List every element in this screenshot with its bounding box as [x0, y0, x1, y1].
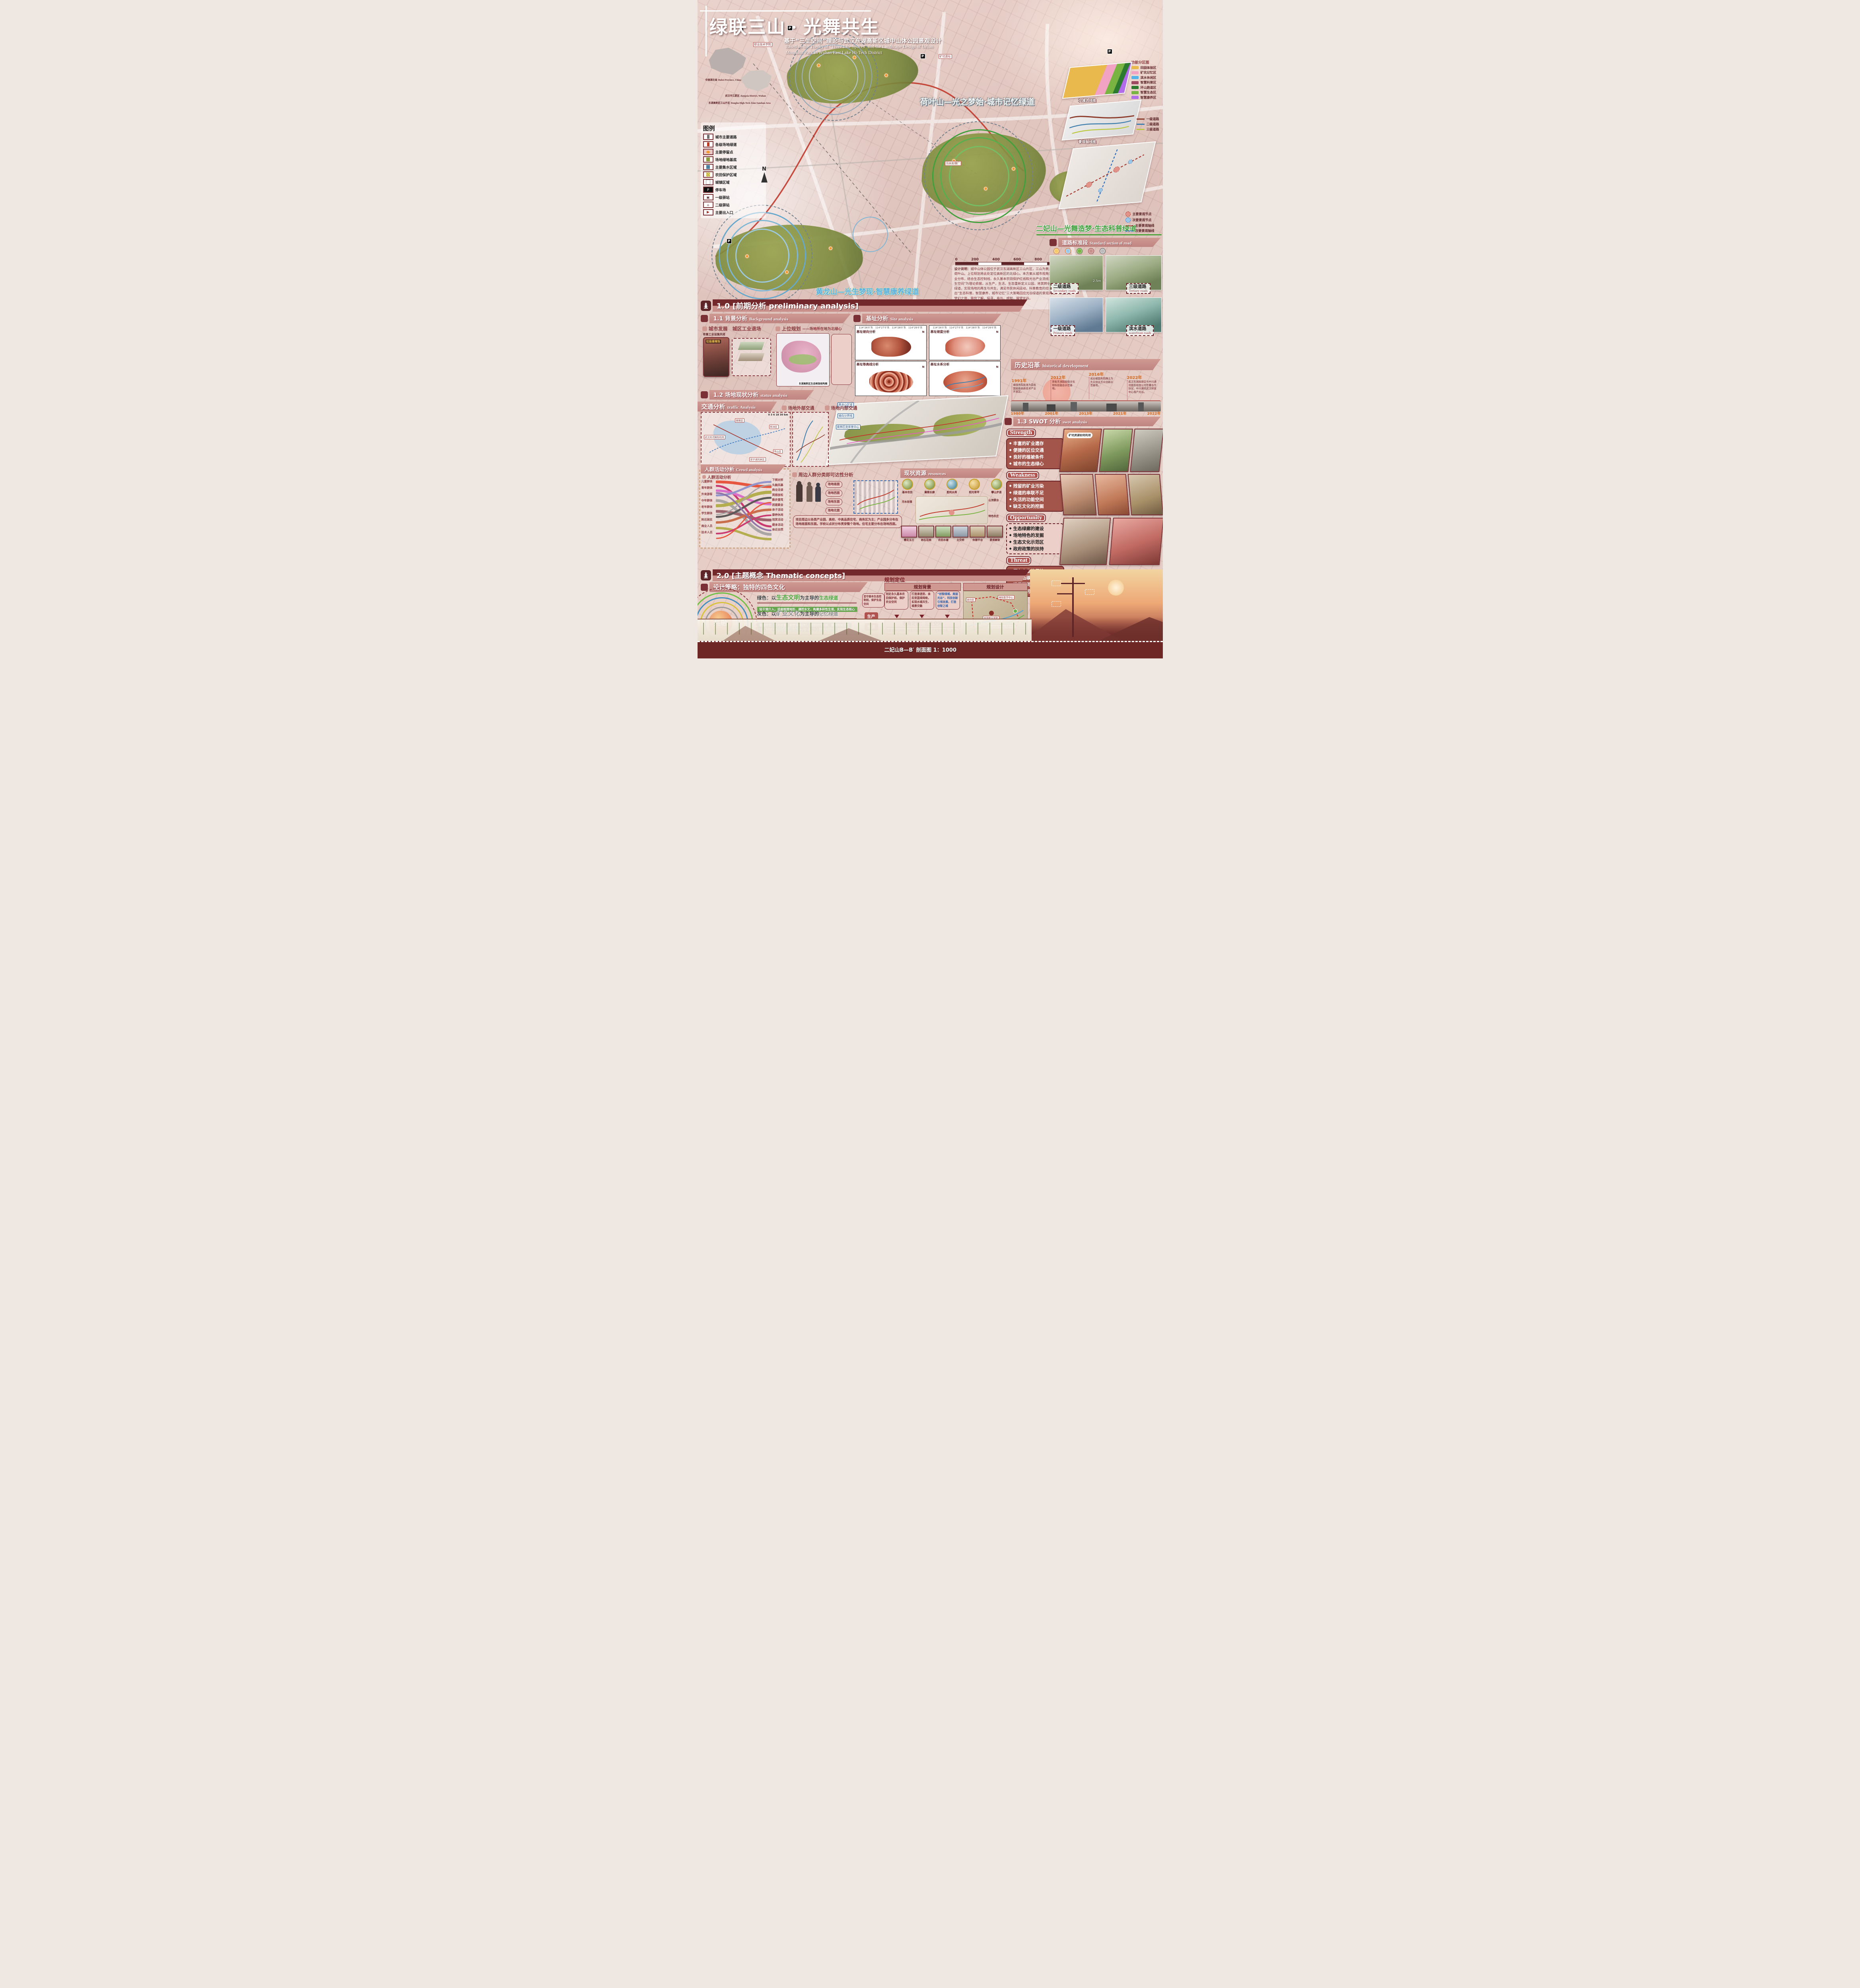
swot-photo-roads: [1130, 429, 1163, 472]
station2-icon: ⌂: [703, 202, 713, 208]
road-line-swatch: [1137, 124, 1145, 125]
weakness-title: Weakness: [1006, 471, 1039, 480]
water-swatch: [703, 164, 713, 170]
section-1-2: 1.2 场地现状分析 status analysis: [701, 390, 814, 400]
zone-swatch: [1131, 81, 1139, 84]
legend-item: 场地绿地基底: [703, 156, 764, 163]
parking-icon: P: [727, 239, 732, 244]
plan-map-label: 国际医学中心: [998, 595, 1015, 600]
subtitle-en-1: Based on the Theory of "Three Life Space…: [786, 45, 934, 49]
periphery-directions: 场地南面 场地西面 场地东面 场地北面: [826, 481, 842, 514]
station1-icon: ▣: [703, 194, 713, 200]
ext-scalebar: 0 3 6 18 30 km: [768, 414, 788, 416]
strength-box: ◆丰富的矿业遗存 ◆便捷的区位交通 ◆良好的植被条件 ◆城市的生态绿心: [1006, 438, 1064, 469]
ext-label: 新洲区: [769, 425, 779, 429]
space-icon: ◆: [1009, 497, 1012, 502]
swot-icon: [1005, 418, 1012, 425]
ext-label: 黄陂区: [735, 418, 744, 423]
threat-title: Threat: [1006, 556, 1032, 565]
swot-photo-visitors: [1059, 518, 1110, 565]
landfill-caption: 垃圾填埋场: [706, 340, 721, 344]
legend-item: 次要景观轴线: [1125, 229, 1154, 233]
smart-lamppost-diagram: [1049, 577, 1097, 637]
road-line-swatch: [1137, 118, 1145, 120]
ext-label: 梁子湖风景区: [749, 457, 766, 462]
legend-item: 主要景观节点: [1125, 212, 1154, 217]
erfeishan-rings: [924, 121, 1032, 229]
bus-icon: ◆: [1009, 448, 1012, 452]
huanglongshan-rings: [711, 205, 811, 304]
subtitle-en-2: Mountain Park in Wuhan East Lake Hi-Tech…: [786, 50, 882, 55]
resource-node-label: 特色农庄: [989, 514, 999, 518]
greenway-swatch: [703, 141, 713, 148]
legend-item: 一级道路: [1137, 117, 1159, 121]
mine-icon: ◆: [1009, 441, 1012, 446]
design-note-label: 设计说明：: [954, 267, 971, 271]
stop-point: [884, 74, 888, 77]
strength-title: Strength: [1006, 429, 1036, 437]
traffic-map-card: [1061, 99, 1141, 140]
weakness-box: ◆残留的矿业污染 ◆绿道的串联不足 ◆失活的功能空间 ◆缺乏文化的挖掘: [1006, 481, 1064, 512]
traffic-map-legend: 一级道路 二级道路 三级道路: [1137, 116, 1159, 132]
legend-item: 城市主要道路: [703, 134, 764, 140]
zone-swatch: [1131, 86, 1139, 89]
opportunity-title: Opportunity: [1006, 514, 1046, 522]
legend-item: 智慧科普区: [1131, 80, 1156, 85]
eco-note: 坚守基本生态控制线，保护生态空间: [862, 593, 884, 608]
planning-design-head: 规划设计: [963, 583, 1028, 591]
legend-item: 主要景观轴线: [1125, 223, 1154, 228]
swot-photo-pit: 矿坑资源如何利用: [1059, 429, 1102, 472]
legend-item: 滨水休闲区: [1131, 76, 1156, 80]
ext-label: 铁山区: [773, 449, 783, 454]
section-1-1-icon: [701, 315, 708, 322]
history-timeline: 1991年被国务院批准为首批国家级高新技术产业开发区。 2012年获批东湖国家级…: [1011, 371, 1161, 415]
zone-swatch: [1131, 96, 1139, 99]
crowd-activities: 下棋对弈头脑风暴商业洽谈冥想放松散步遛弯团建聚会亲子活动康养休闲观赏活动健身活动…: [772, 479, 783, 531]
road-section-header: 道路标准段 Standard section of road: [1050, 238, 1161, 247]
external-traffic-map: 武汉天河国际机场 黄陂区 新洲区 梁子湖风景区 铁山区 0 3 6 18 30 …: [701, 412, 791, 467]
swot-photo-aerial: [1127, 474, 1163, 515]
history-collage: [1011, 400, 1161, 412]
swot-photo-pavilion: [1094, 474, 1129, 515]
resources-header: 现状资源 resources: [900, 468, 1003, 478]
legend-item: ▶主要出入口: [703, 209, 764, 215]
section-drawing-band: [698, 619, 1032, 642]
town-swatch: [703, 179, 713, 185]
upper-plan-map: 东湖高新区生态框架结构图: [776, 333, 830, 386]
landfill-photo: 垃圾填埋场: [703, 337, 729, 377]
crowd-header: 人群活动分析 Crowd analysis: [701, 464, 786, 474]
traffic-analysis-header: 交通分析 traffic Analysis: [698, 402, 777, 412]
heyeshan-banner: 荷叶山—光之梦始·城市记忆绿道: [920, 95, 1035, 107]
history-header: 历史沿革 historical development: [1011, 359, 1161, 370]
legend-item: 智慧康养区: [1131, 95, 1156, 100]
swot-photo-flowerfield: [1109, 518, 1162, 565]
periphery-people: [795, 481, 822, 505]
minor-ring: [853, 217, 888, 252]
road-label-secondary: 二级道路Secondary roads: [1051, 283, 1079, 294]
site-analysis-header: 基址分析 Site analysis: [853, 314, 1001, 323]
road-label-tertiary: 三级道路Tertiary roads: [1126, 283, 1151, 294]
section-1-0-label: 1.0 [前期分析 preliminary analysis]: [713, 299, 1028, 312]
parking-legend-icon: P: [703, 186, 713, 193]
legend-item: ▣一级驿站: [703, 194, 764, 200]
resource-node-label: 污水处理: [902, 499, 912, 503]
crowd-sankey: [716, 479, 772, 542]
swot-photo-person: [1059, 474, 1096, 515]
resource-photo: [918, 526, 934, 538]
planning-arrows: [884, 615, 960, 618]
page-title: 绿联三山 · 光舞共生: [709, 13, 980, 39]
axis-line-swatch: [1125, 231, 1133, 231]
section-2-0: 2.0 [主题概念 Thematic concepts]: [701, 569, 1030, 581]
eco-icon: ◆: [1009, 540, 1012, 544]
sunset-photo: [1030, 569, 1163, 645]
pagoda-icon: [701, 570, 711, 580]
title-rule-h: [700, 10, 871, 12]
axon-label: 奥林匹克体育中心: [836, 425, 861, 429]
culture-icon: ◆: [1009, 504, 1012, 509]
stop-point: [1012, 167, 1015, 171]
legend-item: 田园体验区: [1131, 66, 1156, 70]
planning-left-head: 规划定位: [884, 576, 905, 583]
hubei-map-shape: [739, 69, 774, 92]
zone-swatch: [1131, 76, 1139, 79]
upper-plan-head: 上位规划——场地所在地为北绿心: [775, 325, 842, 332]
city-dev-note: 有害工业设施关闭: [703, 332, 725, 336]
plan-map-label: 居住区: [966, 598, 976, 602]
resources-photo-strip: 樱花玉兰 岩石花园 农田水塘 立交桥 休憩平台 景观廊架: [901, 526, 1003, 542]
title-block: 绿联三山 · 光舞共生: [709, 13, 980, 39]
legend-item: 主要停留点: [703, 149, 764, 155]
parking-icon: P: [1107, 49, 1112, 54]
functional-map-legend: 田园体验区 矿坑记忆区 滨水休闲区 智慧科普区 环山跑道区 智慧生态区 智慧康养…: [1131, 65, 1156, 100]
internal-traffic-head: 场地内部交通: [825, 405, 857, 411]
site-panel-contour: 基址等高线分析 N: [855, 361, 927, 396]
north-arrow: N: [761, 166, 768, 182]
road-label-waterfront: 滨水道路waterfront roads: [1126, 325, 1154, 336]
swot-header: 1.3 SWOT 分析 swot analysis: [1005, 417, 1161, 426]
section-1-1: 1.1 背景分析 Background analysis: [701, 314, 851, 323]
section-1-0: 1.0 [前期分析 preliminary analysis]: [701, 299, 1028, 312]
upper-plan-note-box: [831, 334, 852, 385]
periphery-header: 周边人群分类即可达性分析: [792, 472, 853, 478]
farmland-swatch: [703, 171, 713, 178]
road-section-icon: [1050, 239, 1057, 246]
legend-item: 二级道路: [1137, 122, 1159, 126]
road-line-swatch: [1137, 129, 1145, 130]
planning-boxes: 划定永久基本农田保护线，保护农业空间 打造渗透型、亲民型蓝绿网络，实现水城共生、…: [884, 591, 960, 610]
bottom-band: 二妃山B—B′ 剖面图 1：1000: [698, 641, 1163, 658]
section-2-0-label: 2.0 [主题概念 Thematic concepts]: [713, 569, 1030, 581]
axis-map-title: 景观轴线图: [1079, 139, 1096, 144]
section-1-2-icon: [701, 391, 708, 398]
zone-swatch: [1131, 91, 1139, 94]
parking-icon: P: [920, 54, 925, 59]
swot-photo-lake: [1099, 429, 1133, 472]
zone-swatch: [1131, 71, 1139, 74]
node-swatch: [1125, 217, 1131, 223]
map-label: 矿坑遗址: [939, 54, 952, 59]
feature-icon: ◆: [1009, 533, 1012, 538]
stop-point: [853, 56, 856, 59]
city-dev-head: 城市发展 城区工业退场: [702, 325, 761, 332]
bulb-icon: [1053, 248, 1059, 254]
opportunity-box: ◆生态绿廊的建设 ◆场地特色的发掘 ◆生态文化示范区 ◆政府政策的扶持: [1006, 523, 1064, 554]
history-entry: 2016年光谷被国务院确立为大众创业万众创新示范基地。: [1089, 371, 1114, 399]
resource-node-photo: [902, 479, 913, 490]
axis-map-card: [1058, 141, 1156, 209]
legend-item: 各级场地绿道: [703, 141, 764, 148]
resource-photo: [987, 526, 1003, 538]
legend-title: 图例: [703, 124, 764, 132]
upper-plan-caption: 东湖高新区生态框架结构图: [798, 382, 828, 385]
map-legend: 图例 城市主要道路 各级场地绿道 主要停留点 场地绿地基底 主要集水区域 农田保…: [701, 122, 766, 218]
resource-photo: [970, 526, 985, 538]
road-dim: 2.5m: [1093, 279, 1101, 283]
resource-photo: [952, 526, 968, 538]
location-caption-1: 中国湖北省 Hubei Province, China: [706, 78, 742, 82]
legend-item: 主要集水区域: [703, 164, 764, 170]
stop-point: [745, 254, 749, 258]
traffic-map-title: 交通流线图: [1079, 98, 1096, 103]
history-entry: 2012年获批东湖国家级文化和科技融合示范基地。: [1051, 374, 1075, 401]
external-traffic-head: 场地外部交通: [782, 405, 814, 411]
periphery-note: 项目周边以各类产业园、高校、中高品质住宅、商务区为主；产业园多分布在场地南面和东…: [793, 515, 902, 528]
lamp-icon: [1100, 248, 1106, 254]
internal-traffic-map: [792, 412, 829, 467]
resource-photo: [901, 526, 917, 538]
planning-bg-head: 规划背景: [884, 583, 961, 591]
huanglongshan-banner: 黄龙山—光生梦现·智慧康养绿道: [816, 286, 919, 297]
subtitle-zh: 基于“三生空间”理论与武汉东湖高新区城中山体公园景观设计: [784, 37, 942, 45]
resources-nodes-top: 基本农田 蒹葭长廊 胜利水库 阳光草坪 攀山步道: [902, 479, 1002, 494]
road-section-icons: [1053, 248, 1106, 254]
china-map-shape: [705, 46, 748, 77]
legend-item: 智慧生态区: [1131, 90, 1156, 95]
pagoda-icon: [701, 301, 711, 311]
history-bottom-years: 1980年 2001年 2013年 2021年 2022年: [1011, 411, 1161, 416]
axon-label: 坡向分界线: [838, 414, 854, 418]
periphery-map: [853, 480, 898, 514]
tree-icon: [1077, 248, 1083, 254]
resource-node-label: 山顶景台: [989, 498, 999, 502]
resource-photo: [935, 526, 951, 538]
competition-poster: P P P P P 职业技术学院 矿坑遗址 污水处理厂 绿联三山 · 光舞共生 …: [698, 0, 1163, 658]
resource-node-photo: [947, 479, 958, 490]
location-maps: 中国湖北省 Hubei Province, China 武汉市江夏区 Jiang…: [702, 38, 781, 118]
road-swatch: [703, 134, 713, 140]
site-panel-aspect: 114°26′0″东 114°27′0″东 114°28′0″东 114°29′…: [855, 325, 927, 360]
legend-item: 矿坑记忆区: [1131, 70, 1156, 75]
road-label-primary: 一级道路Primary roads: [1051, 325, 1075, 336]
stop-point: [817, 64, 820, 67]
node-swatch: [1125, 212, 1131, 217]
stop-point: [829, 247, 832, 250]
resource-node-photo: [924, 479, 935, 490]
policy-icon: ◆: [1009, 546, 1012, 551]
functional-map-card: [1062, 62, 1132, 99]
location-caption-2: 武汉市江夏区 Jiangxia District, Wuhan: [725, 94, 766, 97]
legend-item: 次要景观节点: [1125, 217, 1154, 223]
zone-swatch: [1131, 66, 1139, 69]
legend-item: P停车场: [703, 186, 764, 193]
speech-bubble: 矿坑资源如何利用: [1067, 433, 1092, 438]
axis-line-swatch: [1125, 225, 1133, 226]
history-entry: 2022年武汉东湖高新区与中兴通讯股份有限公司签署合作协议，中兴通讯武汉研发中心…: [1127, 374, 1157, 401]
section-view-label: 二妃山B—B′ 剖面图 1：1000: [884, 646, 957, 653]
pollution-icon: ◆: [1009, 483, 1012, 488]
legend-item: 三级道路: [1137, 127, 1159, 132]
site-analysis-icon: [853, 315, 861, 322]
green-base-swatch: [703, 156, 713, 163]
legend-item: 环山跑道区: [1131, 85, 1156, 90]
map-label: 污水处理厂: [945, 161, 961, 166]
resources-map: [915, 496, 988, 524]
legend-item: 城镇区域: [703, 179, 764, 185]
stop-point: [785, 270, 789, 274]
axis-map-legend: 主要景观节点 次要景观节点 主要景观轴线 次要景观轴线: [1125, 211, 1154, 234]
resource-node-photo: [969, 479, 980, 490]
industry-diagram: [732, 338, 771, 376]
location-caption-3: 东湖高新区三山片区 Donghu High-Tech Zone Sanshan …: [709, 101, 771, 105]
stop-point: [984, 187, 987, 190]
ext-label: 武汉天河国际机场: [704, 435, 725, 439]
forest-icon: ◆: [1009, 461, 1012, 466]
history-entry: 1991年被国务院批准为首批国家级高新技术产业开发区。: [1012, 377, 1036, 404]
bench-icon: [1088, 248, 1094, 254]
legend-item: 农田保护区域: [703, 171, 764, 178]
crowd-groups: 儿童群体青年群体外来游客中年群体老年群体学生群体附近居民商业人员技术人员: [702, 480, 713, 534]
stop-swatch: [703, 149, 713, 155]
site-panel-water: 基址水系分析 N: [929, 361, 1001, 396]
link-icon: ◆: [1009, 490, 1012, 495]
legend-item: ⌂二级驿站: [703, 202, 764, 208]
plant-icon: ◆: [1009, 454, 1012, 459]
screen-icon: [1065, 248, 1071, 254]
resource-node-photo: [991, 479, 1002, 490]
entrance-icon: ▶: [703, 209, 713, 215]
site-panel-slope: 114°26′0″东 114°27′0″东 114°28′0″东 114°29′…: [929, 325, 1001, 360]
corridor-icon: ◆: [1009, 526, 1012, 531]
functional-map-title: 功能分区图: [1131, 60, 1149, 65]
